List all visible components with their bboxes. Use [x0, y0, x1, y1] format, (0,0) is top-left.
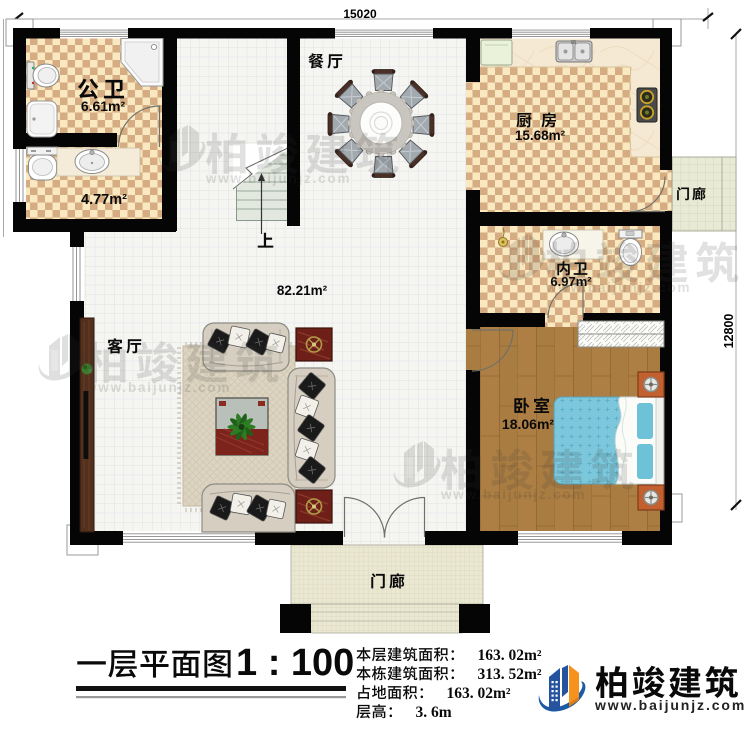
svg-text:6.61m²: 6.61m²: [81, 98, 126, 114]
svg-text:313. 52m²: 313. 52m²: [478, 666, 542, 683]
svg-text:www.baijunjz.com: www.baijunjz.com: [594, 697, 746, 713]
svg-text:www.baijunjz.com: www.baijunjz.com: [440, 487, 586, 502]
svg-text:4.77m²: 4.77m²: [81, 192, 127, 208]
svg-text:12800: 12800: [722, 314, 736, 349]
svg-text:1 : 100: 1 : 100: [236, 642, 354, 684]
svg-text:18.06m²: 18.06m²: [502, 416, 554, 432]
svg-text:www.baijunjz.com: www.baijunjz.com: [85, 380, 231, 395]
svg-text:15020: 15020: [343, 7, 377, 21]
svg-text:3. 6m: 3. 6m: [416, 704, 452, 721]
svg-text:www.baijunjz.com: www.baijunjz.com: [545, 280, 691, 295]
svg-text:163. 02m²: 163. 02m²: [447, 685, 511, 702]
svg-text:82.21m²: 82.21m²: [277, 283, 328, 298]
svg-text:163. 02m²: 163. 02m²: [478, 647, 542, 664]
svg-text:15.68m²: 15.68m²: [515, 128, 566, 143]
svg-text:www.baijunjz.com: www.baijunjz.com: [205, 171, 351, 186]
